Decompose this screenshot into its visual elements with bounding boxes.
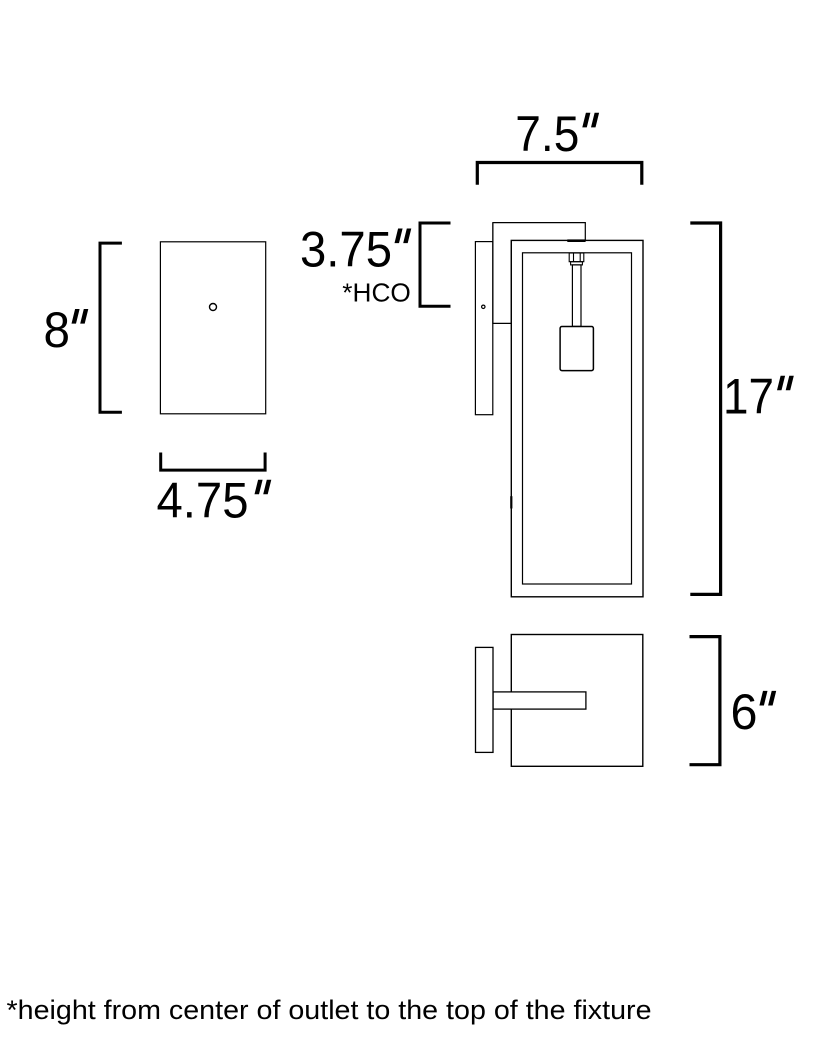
- svg-text:3.75: 3.75: [300, 222, 392, 278]
- svg-text:*height from center of outlet: *height from center of outlet to the top…: [7, 995, 652, 1025]
- svg-text:4.75: 4.75: [157, 473, 249, 529]
- svg-text:6: 6: [731, 684, 758, 740]
- svg-text:8: 8: [44, 302, 71, 358]
- svg-text:7.5: 7.5: [515, 106, 579, 162]
- svg-text:17: 17: [723, 369, 774, 425]
- svg-text:*HCO: *HCO: [342, 278, 411, 308]
